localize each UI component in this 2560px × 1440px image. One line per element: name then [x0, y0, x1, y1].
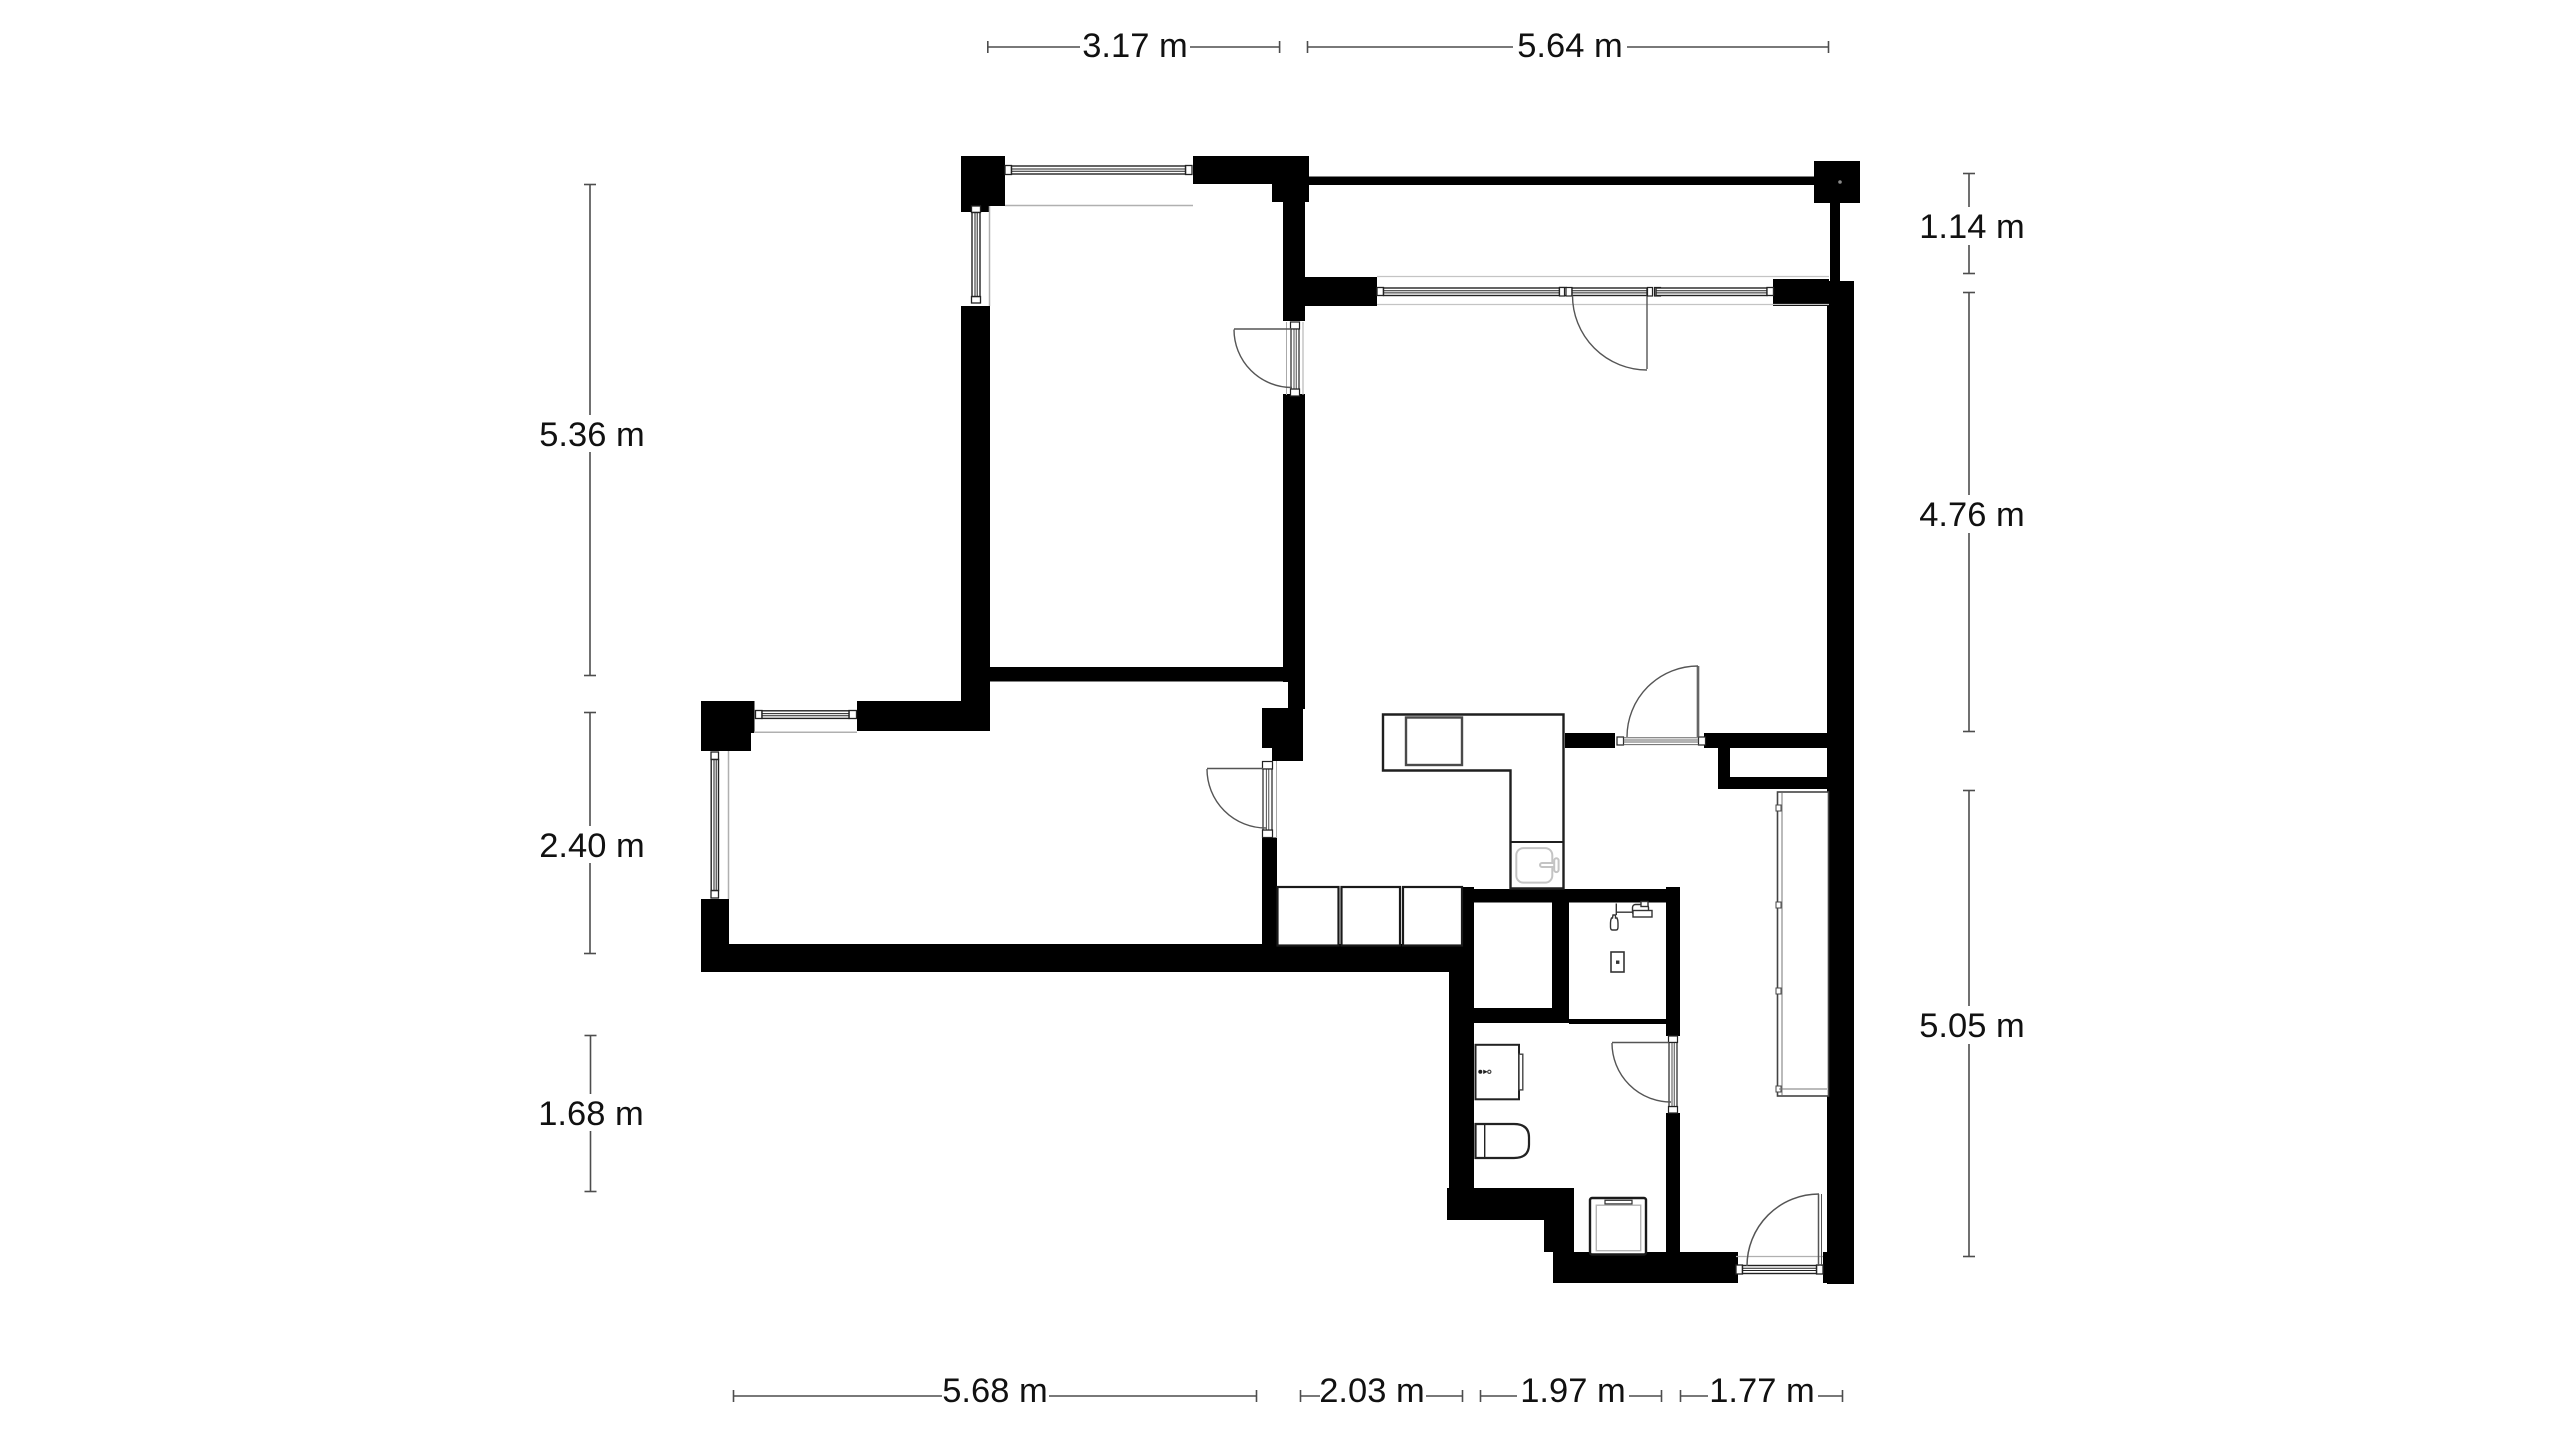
svg-text:5.36 m: 5.36 m	[539, 416, 644, 454]
svg-text:4.76 m: 4.76 m	[1919, 496, 2024, 534]
svg-text:5.64 m: 5.64 m	[1517, 27, 1622, 65]
svg-text:5.05 m: 5.05 m	[1919, 1007, 2024, 1045]
svg-text:1.77 m: 1.77 m	[1709, 1372, 1814, 1410]
svg-text:1.68 m: 1.68 m	[538, 1095, 643, 1133]
svg-text:2.40 m: 2.40 m	[539, 827, 644, 865]
svg-text:5.68 m: 5.68 m	[942, 1372, 1047, 1410]
svg-text:2.03 m: 2.03 m	[1319, 1372, 1424, 1410]
svg-text:1.14 m: 1.14 m	[1919, 208, 2024, 246]
svg-text:3.17 m: 3.17 m	[1082, 27, 1187, 65]
svg-text:1.97 m: 1.97 m	[1520, 1372, 1625, 1410]
